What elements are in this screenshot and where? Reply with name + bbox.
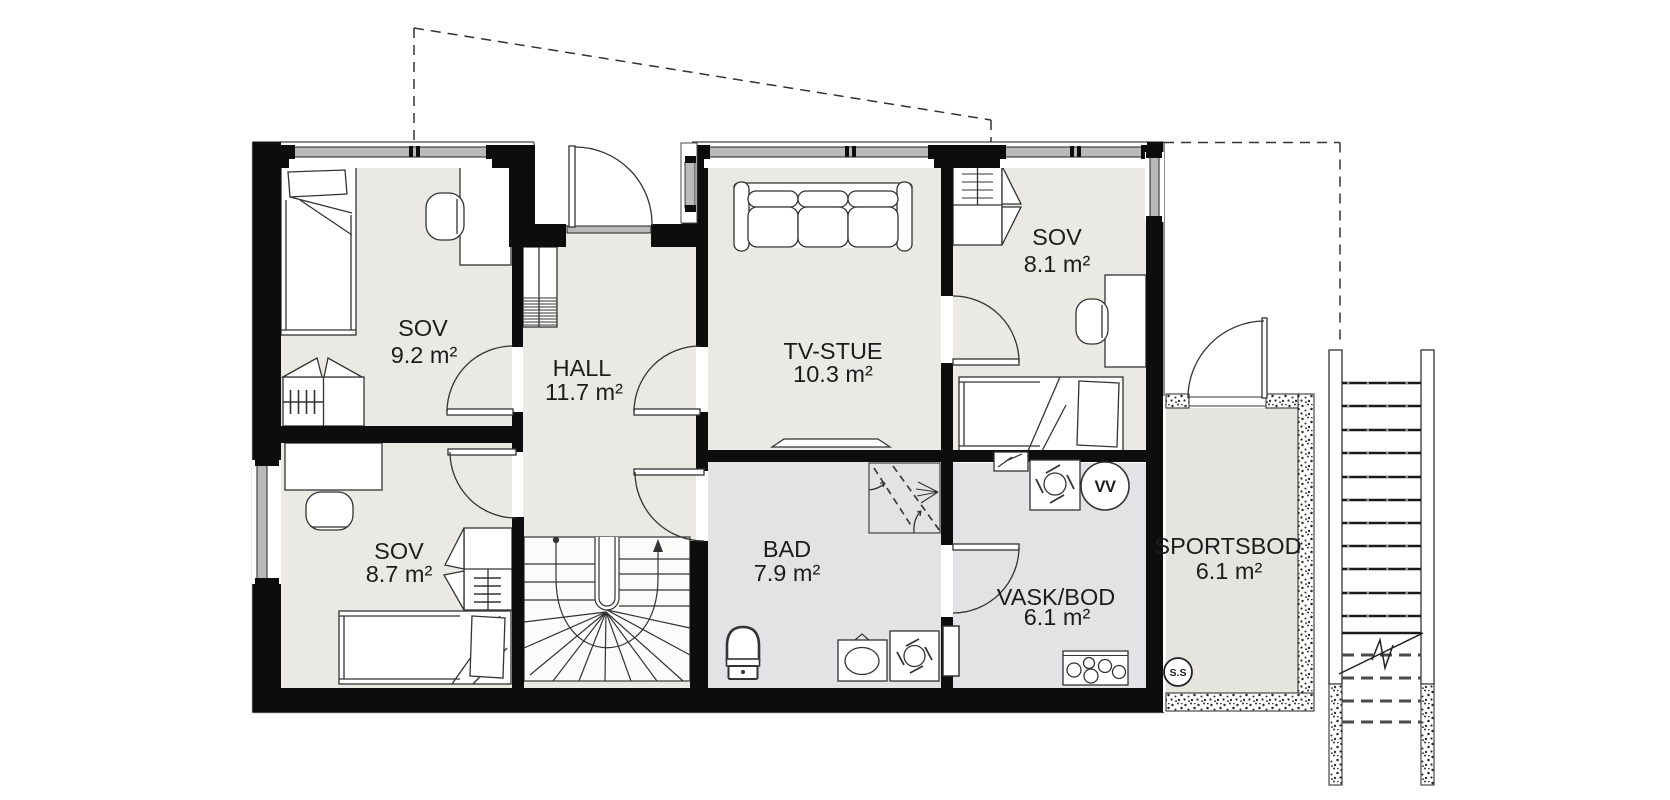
svg-text:BAD: BAD — [763, 536, 811, 562]
svg-text:SOV: SOV — [1032, 224, 1082, 250]
svg-text:10.3 m²: 10.3 m² — [793, 361, 873, 387]
svg-text:6.1 m²: 6.1 m² — [1196, 558, 1263, 584]
svg-text:HALL: HALL — [553, 355, 612, 381]
svg-text:VV: VV — [1094, 478, 1116, 496]
svg-text:6.1 m²: 6.1 m² — [1024, 604, 1091, 630]
svg-text:S.S: S.S — [1170, 667, 1187, 679]
svg-text:SOV: SOV — [398, 315, 448, 341]
svg-text:8.1 m²: 8.1 m² — [1024, 251, 1091, 277]
svg-text:7.9 m²: 7.9 m² — [754, 560, 821, 586]
svg-text:8.7 m²: 8.7 m² — [366, 561, 433, 587]
svg-text:SPORTSBOD: SPORTSBOD — [1154, 533, 1301, 559]
svg-text:11.7 m²: 11.7 m² — [545, 379, 623, 405]
svg-text:9.2 m²: 9.2 m² — [391, 342, 458, 368]
